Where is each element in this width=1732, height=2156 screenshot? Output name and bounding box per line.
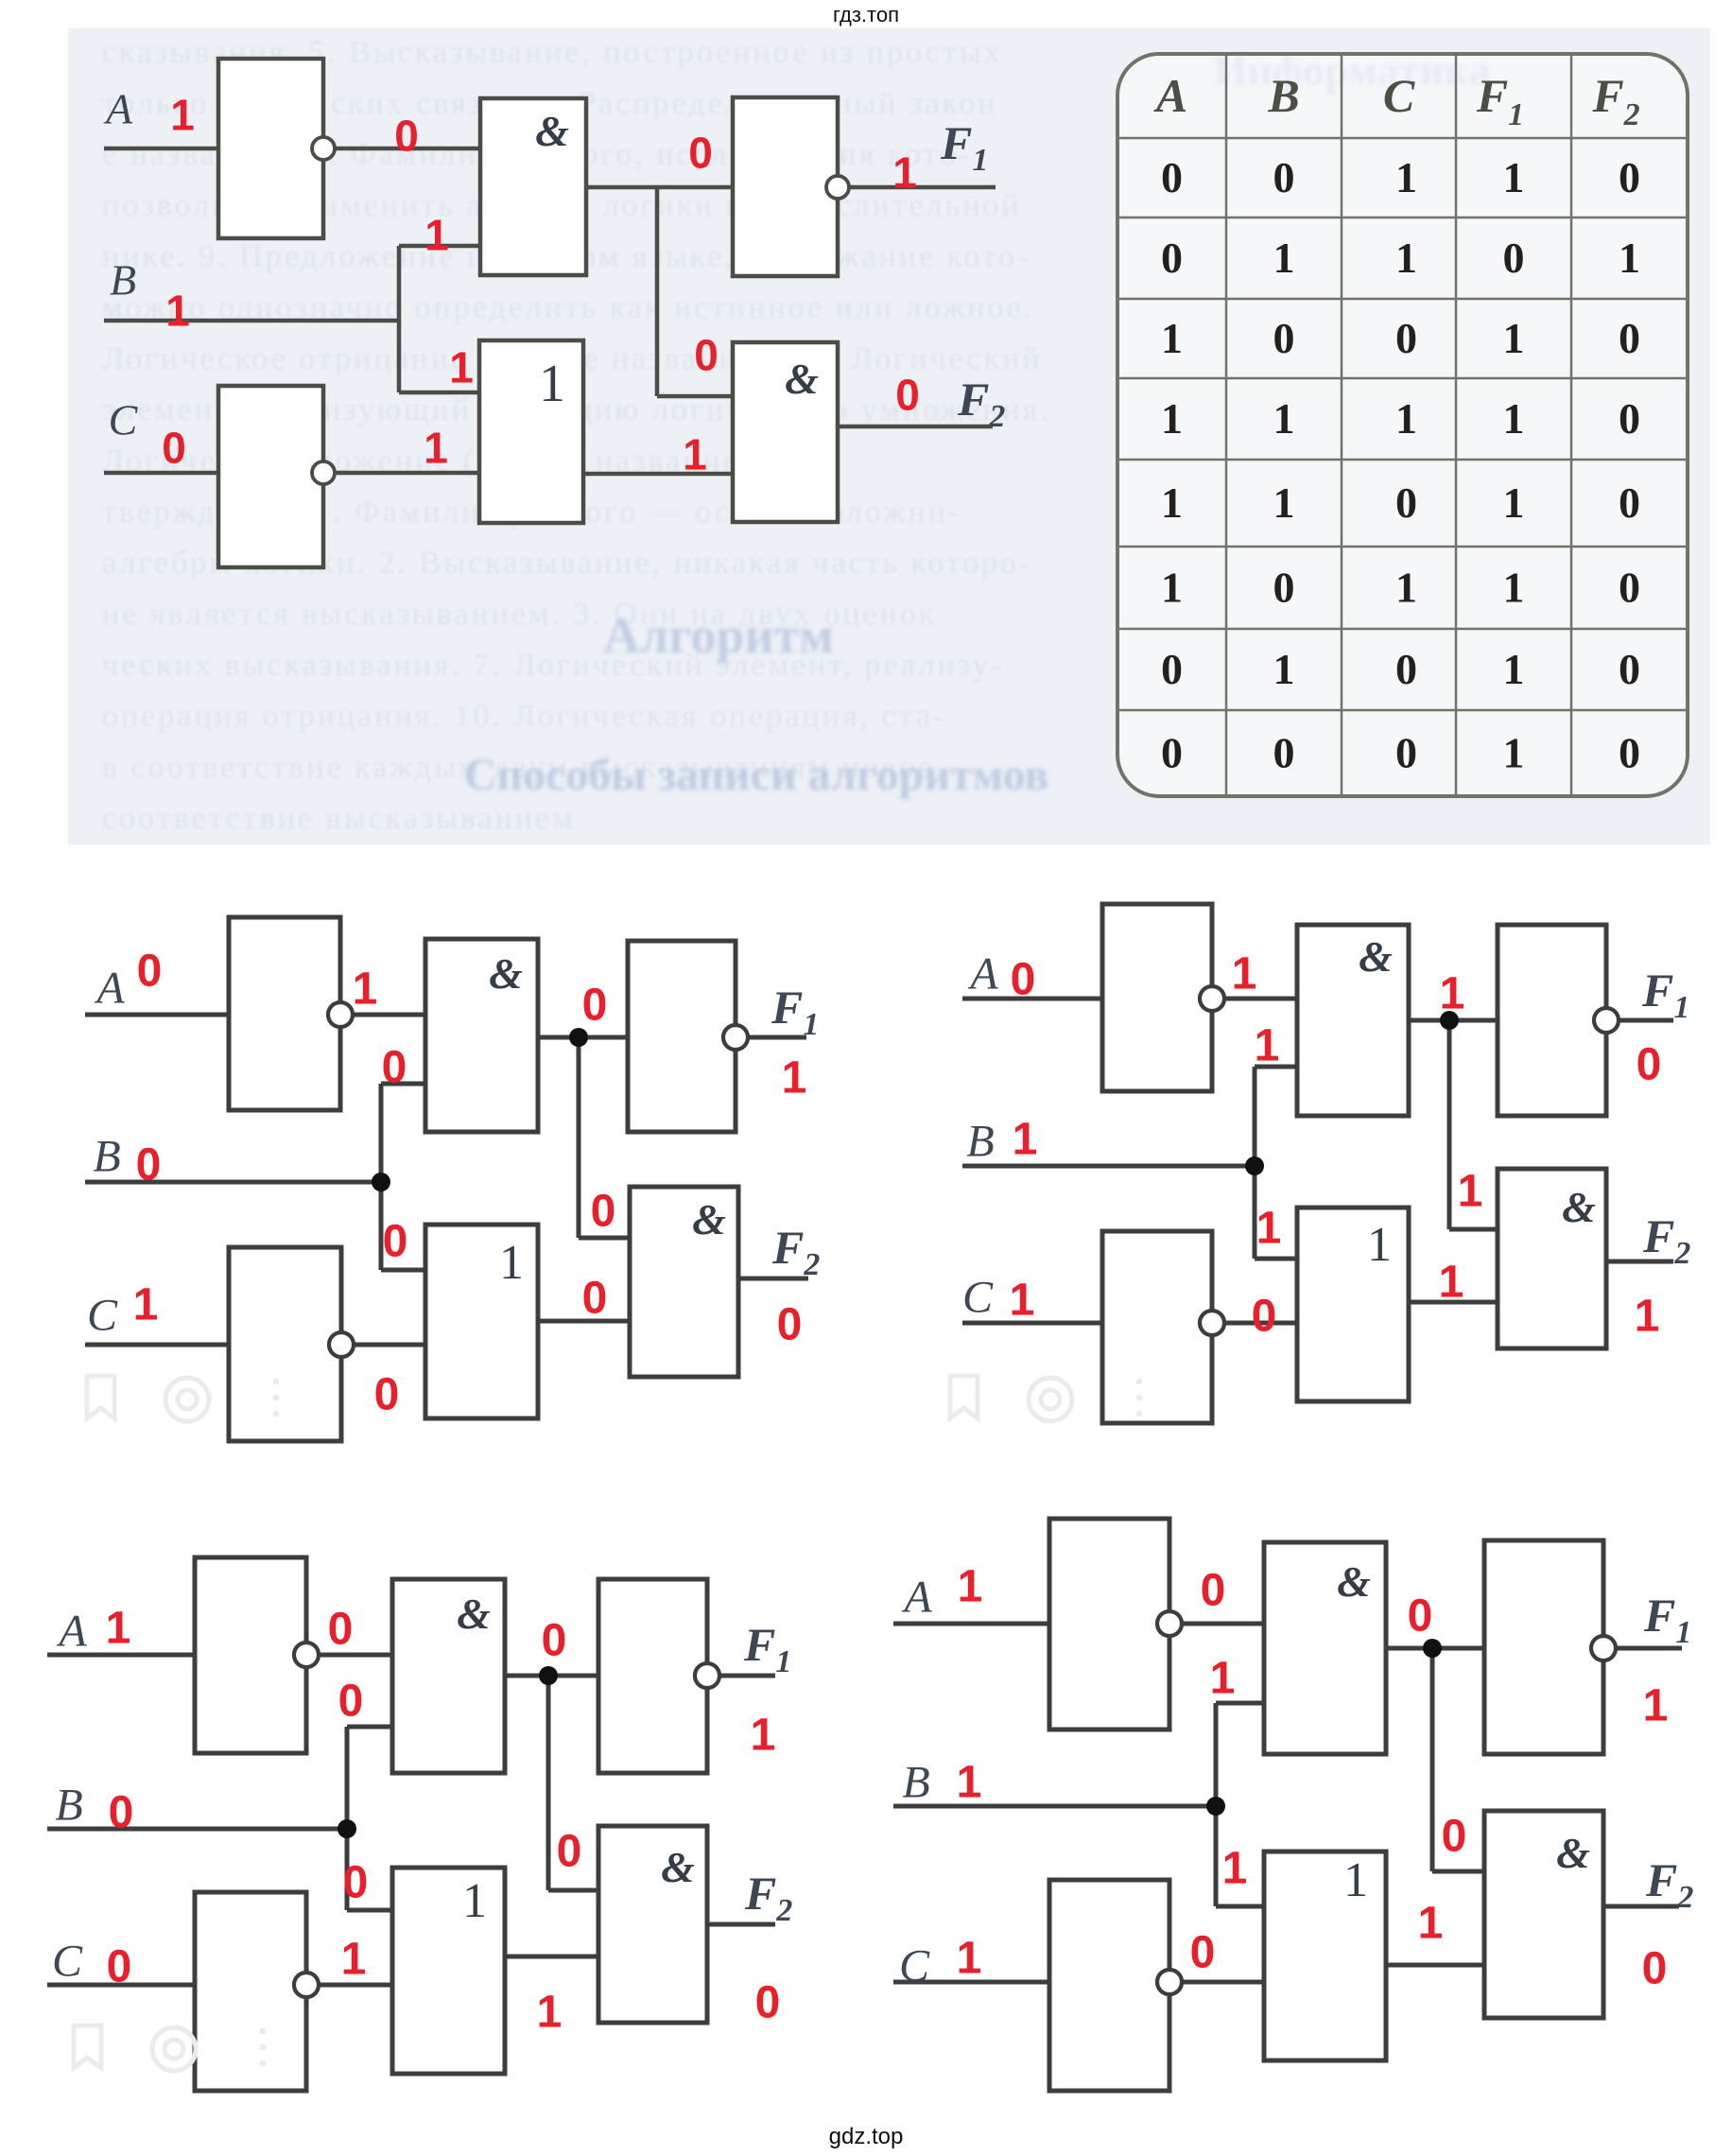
svg-text:0: 0 [328,1604,354,1654]
svg-text:1: 1 [341,1934,367,1984]
svg-text:B: B [55,1780,82,1830]
svg-text:Способы записи алгоритмов: Способы записи алгоритмов [464,750,1049,800]
svg-text:0: 0 [1252,1291,1277,1341]
svg-text:&: & [1359,932,1393,981]
svg-text:1: 1 [1232,948,1257,999]
svg-text:1: 1 [957,1757,982,1807]
svg-text:B: B [93,1131,120,1181]
svg-text:0: 0 [1503,234,1525,282]
svg-text:0: 0 [1619,478,1640,527]
svg-text:0: 0 [1161,234,1183,282]
svg-text:0: 0 [755,1977,781,2027]
svg-text:1: 1 [1273,234,1295,282]
svg-text:1: 1 [1013,1114,1038,1164]
svg-text:0: 0 [394,112,419,161]
svg-text:0: 0 [109,1787,134,1837]
svg-text:0: 0 [1619,729,1640,777]
svg-text:1: 1 [1458,1166,1483,1216]
svg-text:A: A [103,85,133,133]
svg-text:1: 1 [1503,729,1525,777]
svg-text:F1: F1 [1641,964,1689,1025]
svg-text:1: 1 [539,355,565,413]
svg-text:1: 1 [1161,314,1183,362]
svg-text:B: B [110,256,136,304]
svg-text:1: 1 [1439,1257,1464,1307]
svg-text:0: 0 [382,1042,407,1092]
svg-text:1: 1 [1503,153,1525,201]
svg-text:0: 0 [343,1857,369,1907]
svg-text:1: 1 [462,1874,487,1928]
svg-text:B: B [902,1757,929,1807]
svg-text:C: C [87,1290,118,1340]
svg-text:&: & [692,1195,726,1243]
svg-text:0: 0 [1395,729,1417,777]
svg-text:0: 0 [383,1216,408,1266]
svg-text:0: 0 [582,980,608,1030]
svg-text:0: 0 [1637,1039,1662,1089]
svg-text:1: 1 [1256,1203,1282,1253]
svg-text:0: 0 [1395,645,1417,693]
svg-text:1: 1 [1418,1898,1444,1948]
svg-text:1: 1 [1273,478,1295,527]
svg-text:1: 1 [1273,645,1295,693]
svg-text:1: 1 [424,424,448,473]
svg-text:&: & [1337,1557,1371,1606]
svg-text:&: & [1556,1829,1590,1877]
svg-text:A: A [901,1572,932,1622]
svg-text:1: 1 [449,343,474,392]
svg-text:0: 0 [1161,153,1183,201]
svg-text:&: & [785,355,819,403]
svg-text:0: 0 [1273,153,1295,201]
svg-text:1: 1 [133,1279,159,1330]
svg-text:1: 1 [1643,1680,1669,1730]
svg-text:&: & [535,107,569,155]
svg-text:1: 1 [1503,564,1525,612]
svg-text:операция отрицания. 10. Логиче: операция отрицания. 10. Логическая опера… [102,699,946,734]
svg-text:1: 1 [424,211,449,260]
svg-text:0: 0 [1395,478,1417,527]
svg-text:1: 1 [1503,645,1525,693]
svg-text:0: 0 [107,1941,132,1991]
svg-text:&: & [661,1843,695,1891]
svg-text:F1: F1 [743,1618,791,1679]
svg-text:C: C [962,1272,994,1322]
svg-text:0: 0 [1161,729,1183,777]
svg-text:0: 0 [1201,1565,1226,1615]
svg-text:1: 1 [1210,1653,1236,1703]
svg-text:B: B [1267,69,1299,122]
svg-text:1: 1 [1619,234,1640,282]
svg-text:ческих высказывания. 7. Логиче: ческих высказывания. 7. Логический элеме… [102,648,1005,683]
svg-text:0: 0 [688,129,713,178]
svg-text:1: 1 [1440,968,1465,1018]
svg-text:1: 1 [1503,394,1525,443]
svg-text:F2: F2 [1645,1853,1693,1915]
svg-text:0: 0 [591,1186,616,1236]
svg-text:1: 1 [537,1987,563,2037]
svg-text:0: 0 [1011,954,1036,1004]
svg-text:0: 0 [1442,1811,1467,1861]
svg-text:F1: F1 [771,981,819,1042]
svg-text:&: & [1562,1183,1596,1231]
svg-text:0: 0 [137,946,163,996]
svg-text:1: 1 [1367,1218,1392,1272]
svg-text:&: & [457,1590,491,1638]
svg-text:1: 1 [1161,564,1183,612]
svg-text:A: A [967,948,998,999]
svg-text:0: 0 [557,1826,582,1876]
svg-text:0: 0 [777,1299,803,1349]
svg-text:1: 1 [1395,234,1417,282]
svg-text:0: 0 [1619,153,1640,201]
svg-text:1: 1 [957,1933,982,1983]
svg-text:1: 1 [1395,564,1417,612]
svg-text:0: 0 [542,1615,567,1665]
svg-text:C: C [1383,69,1415,122]
svg-text:0: 0 [1161,645,1183,693]
svg-text:0: 0 [374,1369,400,1419]
svg-text:1: 1 [1395,153,1417,201]
svg-text:1: 1 [1273,394,1295,443]
svg-text:1: 1 [353,964,378,1014]
svg-text:F2: F2 [744,1867,792,1928]
svg-text:A: A [1153,69,1187,122]
svg-text:0: 0 [338,1676,364,1726]
svg-text:0: 0 [1619,314,1640,362]
svg-text:1: 1 [106,1603,131,1653]
svg-text:соответствие высказыванием: соответствие высказыванием [102,801,576,836]
svg-text:C: C [899,1940,930,1991]
svg-text:F2: F2 [1642,1209,1690,1271]
svg-text:1: 1 [1161,478,1183,527]
svg-text:1: 1 [892,148,917,198]
svg-text:1: 1 [683,430,707,479]
svg-text:0: 0 [694,331,719,380]
svg-text:1: 1 [751,1710,776,1760]
svg-text:1: 1 [958,1561,983,1611]
svg-text:1: 1 [1161,394,1183,443]
svg-text:1: 1 [782,1052,807,1103]
svg-text:1: 1 [1343,1853,1368,1907]
svg-text:1: 1 [1395,394,1417,443]
svg-text:0: 0 [1395,314,1417,362]
svg-text:A: A [56,1606,87,1656]
svg-text:B: B [966,1116,994,1166]
svg-text:0: 0 [1619,394,1640,443]
svg-text:0: 0 [582,1273,608,1323]
svg-text:0: 0 [136,1139,162,1190]
svg-text:1: 1 [1222,1843,1248,1893]
svg-text:1: 1 [499,1236,524,1290]
svg-text:1: 1 [165,287,190,336]
svg-text:1: 1 [1503,314,1525,362]
svg-text:0: 0 [1273,564,1295,612]
svg-text:C: C [52,1936,83,1986]
svg-text:1: 1 [1010,1275,1035,1325]
svg-text:0: 0 [1642,1943,1668,1993]
svg-text:0: 0 [1408,1591,1433,1641]
svg-text:0: 0 [1619,564,1640,612]
svg-text:0: 0 [162,424,186,473]
svg-text:0: 0 [895,371,920,420]
svg-text:0: 0 [1619,645,1640,693]
svg-text:F2: F2 [771,1221,820,1282]
svg-text:A: A [94,963,125,1013]
svg-text:F1: F1 [1643,1589,1691,1650]
svg-text:1: 1 [1635,1291,1660,1341]
svg-text:0: 0 [1273,314,1295,362]
svg-text:1: 1 [1255,1020,1280,1070]
svg-text:0: 0 [1273,729,1295,777]
svg-text:&: & [489,949,523,998]
svg-text:Алгоритм: Алгоритм [603,607,834,664]
svg-text:C: C [109,396,139,444]
svg-text:1: 1 [170,91,195,140]
svg-text:0: 0 [1190,1927,1216,1977]
svg-text:1: 1 [1503,478,1525,527]
